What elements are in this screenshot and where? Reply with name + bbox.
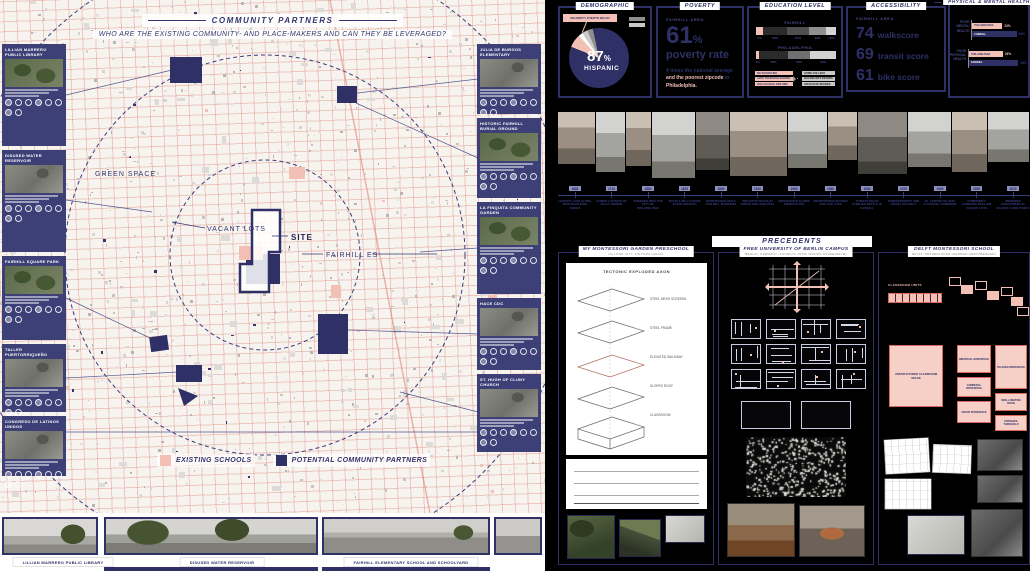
amenity-icon bbox=[490, 439, 497, 446]
partner-card-text-line bbox=[480, 422, 524, 424]
amenity-icon bbox=[530, 429, 537, 436]
partner-card[interactable]: LILLIAN MARRERO PUBLIC LIBRARY bbox=[2, 44, 66, 146]
historic-photo bbox=[788, 112, 827, 168]
amenity-icon bbox=[55, 205, 62, 212]
presentation-board: GREEN SPACE VACANT LOTS SITE FAIRHILL ES… bbox=[0, 0, 1030, 571]
axon-drawing-sheet: TECTONIC EXPLODED AXON STEEL MESH SCREEN… bbox=[566, 263, 707, 455]
partner-card-title: CONGRESO DE LATINOS UNIDOS bbox=[5, 419, 63, 429]
education-segment-tick: 12% bbox=[828, 36, 834, 40]
poverty-note-part: and the poorest zipcode bbox=[666, 75, 724, 81]
amenity-icon bbox=[5, 316, 12, 323]
amenity-icon bbox=[5, 409, 12, 416]
tile-line bbox=[757, 346, 758, 358]
legend-swatch bbox=[276, 455, 287, 466]
photo-caption: FAIRHILL ELEMENTARY SCHOOL AND SCHOOLYAR… bbox=[344, 557, 479, 567]
timeline-tick bbox=[1013, 192, 1014, 198]
map-title: COMMUNITY PARTNERS bbox=[142, 14, 404, 27]
timeline-tick bbox=[867, 192, 868, 198]
timeline-entry: 1990EL CENTRO DE ORO CULTURAL CORRIDOR bbox=[923, 186, 957, 211]
timeline-entry: 1975DISINVESTMENT AND RISING VACANCY bbox=[887, 186, 921, 211]
timeline-tick bbox=[721, 192, 722, 198]
amenity-icon bbox=[25, 399, 32, 406]
historic-photo bbox=[952, 112, 987, 172]
tile-line bbox=[814, 320, 815, 335]
legend-swatch bbox=[160, 455, 171, 466]
amenity-icon bbox=[490, 173, 497, 180]
wide-plan-diagram bbox=[801, 401, 851, 429]
amenity-icon bbox=[45, 471, 52, 478]
tile-line bbox=[815, 348, 816, 360]
partner-card-text-line bbox=[480, 344, 514, 346]
timeline-tick bbox=[684, 192, 685, 198]
tile-pink-dot bbox=[821, 351, 823, 353]
health-bar-tick: 23% bbox=[1004, 24, 1010, 28]
amenity-icon bbox=[480, 267, 487, 274]
partner-card[interactable]: JULIA DE BURGOS ELEMENTARY bbox=[477, 44, 541, 114]
precedent-panel-montessori-garden: MY MONTESSORI GARDEN PRESCHOOL HA LONG C… bbox=[558, 252, 714, 565]
timeline-caption: INDUSTRY PEAKS IN NORTH PHILADELPHIA bbox=[741, 200, 775, 208]
historic-photo bbox=[908, 112, 951, 167]
health-bar-row: FAIRHILL38% bbox=[969, 60, 1027, 66]
education-legend-left: NO SCHOOLINGLESS THAN HIGH SCHOOLHIGH SC… bbox=[755, 71, 793, 86]
timeline-caption: PUERTO RICAN FAMILIES SETTLE IN FAIRHILL bbox=[850, 200, 884, 212]
plan-tile bbox=[731, 344, 761, 364]
historic-photo bbox=[696, 112, 729, 170]
education-bar-label: FAIRHILL bbox=[756, 20, 834, 25]
amenity-icon bbox=[5, 205, 12, 212]
health-bar-name: FAIRHILL bbox=[971, 61, 983, 64]
grid-axes-diagram bbox=[765, 261, 829, 313]
historic-photo bbox=[730, 112, 787, 176]
score-label: walkscore bbox=[878, 30, 919, 40]
partner-card-text-line bbox=[5, 299, 49, 301]
poverty-rate-value: 61% bbox=[666, 24, 734, 48]
caption-underline-bar bbox=[104, 567, 318, 571]
partner-card-icon-row bbox=[5, 99, 63, 116]
amenity-icon bbox=[530, 348, 537, 355]
tile-line bbox=[741, 322, 742, 336]
timeline-entry: 1854ANNEXED INTO THE CITY OF PHILADELPHI… bbox=[631, 186, 665, 211]
amenity-icon bbox=[510, 348, 517, 355]
tile-line bbox=[851, 375, 852, 384]
partner-card-text-line bbox=[5, 198, 49, 200]
classroom-unit-square bbox=[1011, 297, 1023, 306]
street-photo bbox=[104, 517, 318, 555]
score-value: 69 bbox=[856, 47, 874, 63]
amenity-icon bbox=[45, 99, 52, 106]
timeline-caption: ANNEXED INTO THE CITY OF PHILADELPHIA bbox=[631, 200, 665, 212]
amenity-icon bbox=[490, 348, 497, 355]
timeline-year: 1990 bbox=[934, 186, 945, 191]
amenity-icon bbox=[15, 316, 22, 323]
amenity-icon bbox=[55, 399, 62, 406]
health-bar-row: FAIRHILL34% bbox=[972, 31, 1025, 37]
plan-tile bbox=[801, 319, 831, 339]
partner-card-icon-row bbox=[5, 306, 63, 323]
map-board: GREEN SPACE VACANT LOTS SITE FAIRHILL ES… bbox=[0, 0, 545, 571]
precedent1-photo bbox=[619, 519, 661, 557]
education-bar-label: PHILADELPHIA bbox=[756, 45, 834, 50]
plan-tile bbox=[766, 369, 796, 389]
partner-card-aerial-image bbox=[5, 359, 63, 387]
partner-card-title: LA FINQUITA COMMUNITY GARDEN bbox=[480, 205, 538, 215]
amenity-icon bbox=[5, 306, 12, 313]
education-segment-tick: 28% bbox=[796, 60, 802, 64]
partner-card-aerial-image bbox=[5, 431, 63, 459]
partner-card-icon-row bbox=[480, 429, 538, 446]
precedent-panel-delft: DELFT MONTESSORI SCHOOL DELFT, NETHERLAN… bbox=[878, 252, 1030, 565]
partner-card-text-line bbox=[5, 92, 49, 94]
tile-line bbox=[773, 336, 788, 337]
axon-layer-label: CLASSROOM bbox=[650, 413, 702, 417]
health-bar-name: PHILADELPHIA bbox=[974, 24, 993, 27]
partner-card[interactable]: CONGRESO DE LATINOS UNIDOS bbox=[2, 416, 66, 476]
partner-card-text-line bbox=[5, 195, 58, 197]
partner-card-text-line bbox=[480, 163, 533, 165]
tile-pink-dot bbox=[853, 373, 855, 375]
education-bar-segment: 36% bbox=[759, 51, 788, 59]
health-group: POOR MENTAL HEALTHPHILADELPHIA23%FAIRHIL… bbox=[950, 20, 1025, 40]
historic-photo bbox=[596, 112, 625, 172]
title-rule-left bbox=[148, 20, 206, 21]
health-bar: FAIRHILL bbox=[972, 31, 1016, 37]
timeline-entry: 1876TEXTILE MILLS DRIVE RAPID GROWTH bbox=[668, 186, 702, 211]
partner-card[interactable]: HACE CDC bbox=[477, 298, 541, 370]
amenity-icon bbox=[5, 215, 12, 222]
timeline-entry: 1910INDUSTRY PEAKS IN NORTH PHILADELPHIA bbox=[741, 186, 775, 211]
tile-pink-dot bbox=[774, 330, 776, 332]
precedent3-photo bbox=[977, 439, 1023, 471]
axon-layer-label: SLOPED ROOF bbox=[650, 384, 702, 388]
partner-card-title: ST. HUGH OF CLUNY CHURCH bbox=[480, 377, 538, 387]
timeline-caption: DEINDUSTRIALIZATION AND JOB LOSS bbox=[813, 200, 847, 208]
plan-tile bbox=[766, 344, 796, 364]
neighborhood-map[interactable]: GREEN SPACE VACANT LOTS SITE FAIRHILL ES… bbox=[0, 0, 545, 513]
partner-card-text-line bbox=[5, 461, 58, 463]
tile-pink-dot bbox=[859, 326, 861, 328]
timeline-year: 1975 bbox=[898, 186, 909, 191]
tile-line bbox=[741, 348, 742, 361]
amenity-icon bbox=[520, 257, 527, 264]
tile-pink-dot bbox=[854, 351, 856, 353]
classroom-unit-square bbox=[975, 281, 987, 290]
precedent1-photo bbox=[665, 515, 705, 543]
amenity-icon bbox=[480, 173, 487, 180]
timeline-tick bbox=[794, 192, 795, 198]
amenity-icon bbox=[530, 257, 537, 264]
tile-line bbox=[750, 324, 751, 333]
amenity-icon bbox=[15, 109, 22, 116]
timeline-year: 1681 bbox=[569, 186, 580, 191]
amenity-icon bbox=[55, 471, 62, 478]
street-photo bbox=[494, 517, 542, 555]
score-row: 74walkscore bbox=[856, 26, 936, 42]
tile-pink-dot bbox=[816, 376, 818, 378]
amenity-icon bbox=[55, 99, 62, 106]
education-legend-chip: SOME COLLEGE bbox=[802, 71, 835, 75]
tile-line bbox=[735, 387, 757, 388]
amenity-icon bbox=[45, 306, 52, 313]
amenity-icon bbox=[5, 471, 12, 478]
partner-card-text-line bbox=[480, 253, 514, 255]
amenity-icon bbox=[500, 173, 507, 180]
title-rule-right bbox=[339, 20, 397, 21]
precedent3-model-photo bbox=[907, 515, 965, 555]
amenity-icon bbox=[480, 358, 487, 365]
tile-line bbox=[736, 349, 737, 361]
education-title: EDUCATION LEVEL bbox=[760, 2, 831, 10]
timeline-caption: FAIRHILL ESTATE OF ISAAC NORRIS bbox=[595, 200, 629, 208]
amenity-icon bbox=[530, 99, 537, 106]
education-segment-tick: 4% bbox=[755, 60, 759, 64]
tile-pink-dot bbox=[777, 385, 779, 387]
partner-card-text-line bbox=[480, 341, 524, 343]
partner-card[interactable]: LA FINQUITA COMMUNITY GARDEN bbox=[477, 202, 541, 294]
tile-line bbox=[771, 348, 789, 349]
timeline-tick bbox=[648, 192, 649, 198]
map-question: WHO ARE THE EXISTING COMMUNITY- AND PLAC… bbox=[93, 30, 453, 39]
timeline-caption: EL CENTRO DE ORO CULTURAL CORRIDOR bbox=[923, 200, 957, 208]
workspace-box: INDIVIDUAL WORKSPACE bbox=[957, 345, 991, 373]
axon-layer-label: ELEVATED WALKWAY bbox=[650, 355, 702, 359]
workspace-box: SMALL MEETING SPACE bbox=[995, 393, 1027, 411]
education-stacked-bar: 9%30%27%22%12% bbox=[756, 27, 836, 35]
poverty-note-part: 4 times the national average bbox=[666, 68, 733, 74]
amenity-icon bbox=[15, 471, 22, 478]
tile-line bbox=[768, 372, 794, 373]
health-bar-tick: 26% bbox=[1005, 52, 1011, 56]
partner-card-aerial-image bbox=[5, 165, 63, 193]
timeline-entry: 2015RENEWED INVESTMENT IN SCHOOLS AND PA… bbox=[996, 186, 1030, 211]
unstructured-classroom-diagram: UNSTRUCTURED CLASSROOM SPACE bbox=[889, 345, 943, 407]
history-timeline: 1681LENAPE LAND ALONG WINGOHOCKING CREEK… bbox=[558, 112, 1030, 211]
poverty-rate-label: poverty rate bbox=[666, 49, 734, 61]
poverty-note-part: Philadelphia. bbox=[666, 83, 697, 89]
site-label: SITE bbox=[291, 233, 313, 242]
health-bar-tick: 34% bbox=[1019, 32, 1025, 36]
partner-card-title: LILLIAN MARRERO PUBLIC LIBRARY bbox=[5, 47, 63, 57]
score-value: 74 bbox=[856, 26, 874, 42]
partner-card-title: JULIA DE BURGOS ELEMENTARY bbox=[480, 47, 538, 57]
tile-line bbox=[841, 325, 858, 326]
precedent2-aerial-photo bbox=[727, 503, 795, 557]
education-segment-tick: 27% bbox=[795, 36, 801, 40]
health-bar: PHILADELPHIA bbox=[972, 23, 1002, 29]
amenity-icon bbox=[35, 471, 42, 478]
partner-card-title: FAIRHILL SQUARE PARK bbox=[5, 259, 63, 264]
partner-card[interactable]: HISTORIC FAIRHILL BURIAL GROUND bbox=[477, 118, 541, 198]
score-row: 61bike score bbox=[856, 68, 936, 84]
partner-card[interactable]: FAIRHILL SQUARE PARK bbox=[2, 256, 66, 340]
amenity-icon bbox=[5, 481, 12, 488]
amenity-icon bbox=[490, 429, 497, 436]
partner-card-text-line bbox=[480, 338, 533, 340]
legend-item: POTENTIAL COMMUNITY PARTNERS bbox=[273, 454, 431, 467]
education-bar-segment: 9% bbox=[756, 27, 763, 35]
health-title: PHYSICAL & MENTAL HEALTH bbox=[943, 0, 1030, 5]
amenity-icon bbox=[520, 429, 527, 436]
plan-tile bbox=[836, 369, 866, 389]
timeline-year: 2015 bbox=[1007, 186, 1018, 191]
partner-card[interactable]: TALLER PUERTORRIQUEÑO bbox=[2, 344, 66, 412]
plan-tile bbox=[836, 319, 866, 339]
historic-photo bbox=[828, 112, 857, 160]
health-bar-row: PHILADELPHIA23% bbox=[972, 23, 1025, 29]
education-bar-segment: 28% bbox=[788, 51, 810, 59]
amenity-icon bbox=[520, 348, 527, 355]
poverty-panel: POVERTY FAIRHILL AREA 61% poverty rate 4… bbox=[656, 6, 744, 98]
demographic-panel: DEMOGRAPHIC MAJORITY PUERTO RICAN 87% HI… bbox=[558, 6, 652, 98]
precedent2-location: BERLIN, GERMANY (CANDILIS JOSIC WOODS SC… bbox=[744, 252, 849, 256]
education-bar-segment: 32% bbox=[810, 51, 836, 59]
education-legend-chip: NO SCHOOLING bbox=[755, 71, 793, 75]
amenity-icon bbox=[490, 257, 497, 264]
amenity-icon bbox=[500, 257, 507, 264]
pie-legend-swatch bbox=[629, 17, 645, 21]
timeline-caption: ROWHOUSES BUILT FOR MILL WORKERS bbox=[704, 200, 738, 208]
timeline-tick bbox=[940, 192, 941, 198]
tile-pink-dot bbox=[782, 361, 784, 363]
plan-tile bbox=[801, 344, 831, 364]
fairhill-es-label: FAIRHILL ES bbox=[326, 252, 378, 259]
partner-card-aerial-image bbox=[480, 59, 538, 87]
timeline-tick bbox=[575, 192, 576, 198]
plan-tile bbox=[766, 319, 796, 339]
partner-card[interactable]: DISUSED WATER RESERVOIR bbox=[2, 150, 66, 252]
historic-photo bbox=[988, 112, 1029, 162]
timeline-caption: TEXTILE MILLS DRIVE RAPID GROWTH bbox=[668, 200, 702, 208]
accessibility-panel: ACCESSIBILITY FAIRHILL AREA 74walkscore6… bbox=[846, 6, 946, 92]
partner-card-title: HISTORIC FAIRHILL BURIAL GROUND bbox=[480, 121, 538, 131]
tile-line bbox=[772, 377, 793, 378]
timeline-entry: 1965PUERTO RICAN FAMILIES SETTLE IN FAIR… bbox=[850, 186, 884, 211]
precedent2-roof-photo bbox=[799, 505, 865, 557]
amenity-icon bbox=[45, 399, 52, 406]
amenity-icon bbox=[25, 99, 32, 106]
classroom-units-label: CLASSROOM UNITS bbox=[888, 283, 922, 287]
amenity-icon bbox=[45, 205, 52, 212]
map-header: COMMUNITY PARTNERS WHO ARE THE EXISTING … bbox=[58, 14, 488, 39]
education-bar-segment: 22% bbox=[809, 27, 827, 35]
partner-card-icon-row bbox=[480, 99, 538, 116]
wide-plan-diagram bbox=[741, 401, 791, 429]
amenity-icon bbox=[480, 439, 487, 446]
workspace-box: ENTRANCE THRESHOLD bbox=[995, 415, 1027, 431]
health-bar: FAIRHILL bbox=[969, 60, 1018, 66]
partner-card-text-line bbox=[5, 296, 58, 298]
timeline-tick bbox=[611, 192, 612, 198]
amenity-icon bbox=[5, 109, 12, 116]
tile-line bbox=[844, 331, 861, 332]
education-panel: EDUCATION LEVEL FAIRHILL9%30%27%22%12%PH… bbox=[747, 6, 843, 98]
plan-sketch-card bbox=[885, 479, 931, 509]
tile-pink-dot bbox=[755, 327, 757, 329]
timeline-tick bbox=[903, 192, 904, 198]
tile-line bbox=[772, 334, 788, 335]
health-bar: PHILADELPHIA bbox=[969, 51, 1003, 57]
classroom-street-diagram bbox=[888, 293, 942, 303]
hispanic-label: HISPANIC bbox=[584, 65, 619, 72]
partner-card-icon-row bbox=[480, 257, 538, 274]
timeline-caption: RENEWED INVESTMENT IN SCHOOLS AND PARKS bbox=[996, 200, 1030, 212]
tile-line bbox=[803, 324, 828, 325]
education-segment-tick: 32% bbox=[820, 60, 826, 64]
health-group: POOR PHYSICAL HEALTHPHILADELPHIA26%FAIRH… bbox=[950, 49, 1025, 69]
health-bar-row: PHILADELPHIA26% bbox=[969, 51, 1027, 57]
precedent3-location: DELFT, NETHERLANDS (HERMAN HERTZBERGER) bbox=[912, 252, 996, 256]
partner-card-text-line bbox=[5, 467, 39, 469]
tile-line bbox=[846, 349, 847, 361]
amenity-icon bbox=[15, 99, 22, 106]
poverty-title: POVERTY bbox=[680, 2, 720, 10]
amenity-icon bbox=[25, 306, 32, 313]
amenity-icon bbox=[25, 471, 32, 478]
partner-card-text-line bbox=[5, 395, 39, 397]
plan-sketch-card bbox=[933, 444, 972, 473]
map-legend: EXISTING SCHOOLSPOTENTIAL COMMUNITY PART… bbox=[157, 454, 430, 467]
historic-photo bbox=[626, 112, 651, 166]
amenity-icon bbox=[510, 99, 517, 106]
amenity-icon bbox=[5, 99, 12, 106]
photo-caption: DISUSED WATER RESERVOIR bbox=[180, 557, 265, 567]
amenity-icon bbox=[15, 205, 22, 212]
tile-line bbox=[809, 360, 830, 361]
tile-line bbox=[771, 355, 792, 356]
timeline-year: 1890 bbox=[715, 186, 726, 191]
partner-card[interactable]: ST. HUGH OF CLUNY CHURCH bbox=[477, 374, 541, 452]
education-legend-chip: BACHELOR'S DEGREE bbox=[802, 77, 835, 81]
workspace-box: TEACHER WORKSPACE bbox=[995, 345, 1027, 389]
tile-line bbox=[740, 375, 741, 388]
caption-underline-bar bbox=[322, 567, 490, 571]
tile-line bbox=[862, 348, 863, 358]
health-bar-tick: 38% bbox=[1020, 61, 1026, 65]
amenity-icon bbox=[520, 173, 527, 180]
historic-photo-collage bbox=[558, 112, 1030, 178]
map-overlay: GREEN SPACE VACANT LOTS SITE FAIRHILL ES bbox=[0, 0, 545, 513]
amenity-icon bbox=[480, 109, 487, 116]
partner-card-aerial-image bbox=[480, 133, 538, 161]
education-segment-tick: 9% bbox=[757, 36, 761, 40]
partner-card-icon-row bbox=[5, 399, 63, 416]
precedent3-photo bbox=[971, 509, 1023, 557]
timeline-caption: DISINVESTMENT AND RISING VACANCY bbox=[887, 200, 921, 208]
timeline-entries: 1681LENAPE LAND ALONG WINGOHOCKING CREEK… bbox=[558, 186, 1030, 211]
amenity-icon bbox=[35, 306, 42, 313]
street-photo bbox=[2, 517, 98, 555]
pie-legend bbox=[629, 17, 645, 28]
score-value: 61 bbox=[856, 68, 874, 84]
tile-line bbox=[767, 381, 788, 382]
amenity-icon bbox=[15, 409, 22, 416]
partner-card-text-line bbox=[480, 169, 514, 171]
map-title-text: COMMUNITY PARTNERS bbox=[212, 16, 334, 25]
classroom-unit-square bbox=[1001, 287, 1013, 296]
plan-sketch-card bbox=[884, 438, 930, 474]
plan-tile bbox=[801, 369, 831, 389]
partner-card-icon-row bbox=[480, 348, 538, 365]
amenity-icon bbox=[510, 173, 517, 180]
tile-pink-dot bbox=[807, 331, 809, 333]
timeline-tick bbox=[757, 192, 758, 198]
partner-card-icon-row bbox=[480, 173, 538, 190]
education-segment-tick: 30% bbox=[772, 36, 778, 40]
timeline-year: 1965 bbox=[861, 186, 872, 191]
partner-card-text-line bbox=[480, 250, 524, 252]
education-legend-chip: LESS THAN HIGH SCHOOL bbox=[755, 77, 793, 81]
historic-photo bbox=[558, 112, 595, 164]
timeline-caption: DEPRESSION SLOWS PRODUCTION bbox=[777, 200, 811, 208]
